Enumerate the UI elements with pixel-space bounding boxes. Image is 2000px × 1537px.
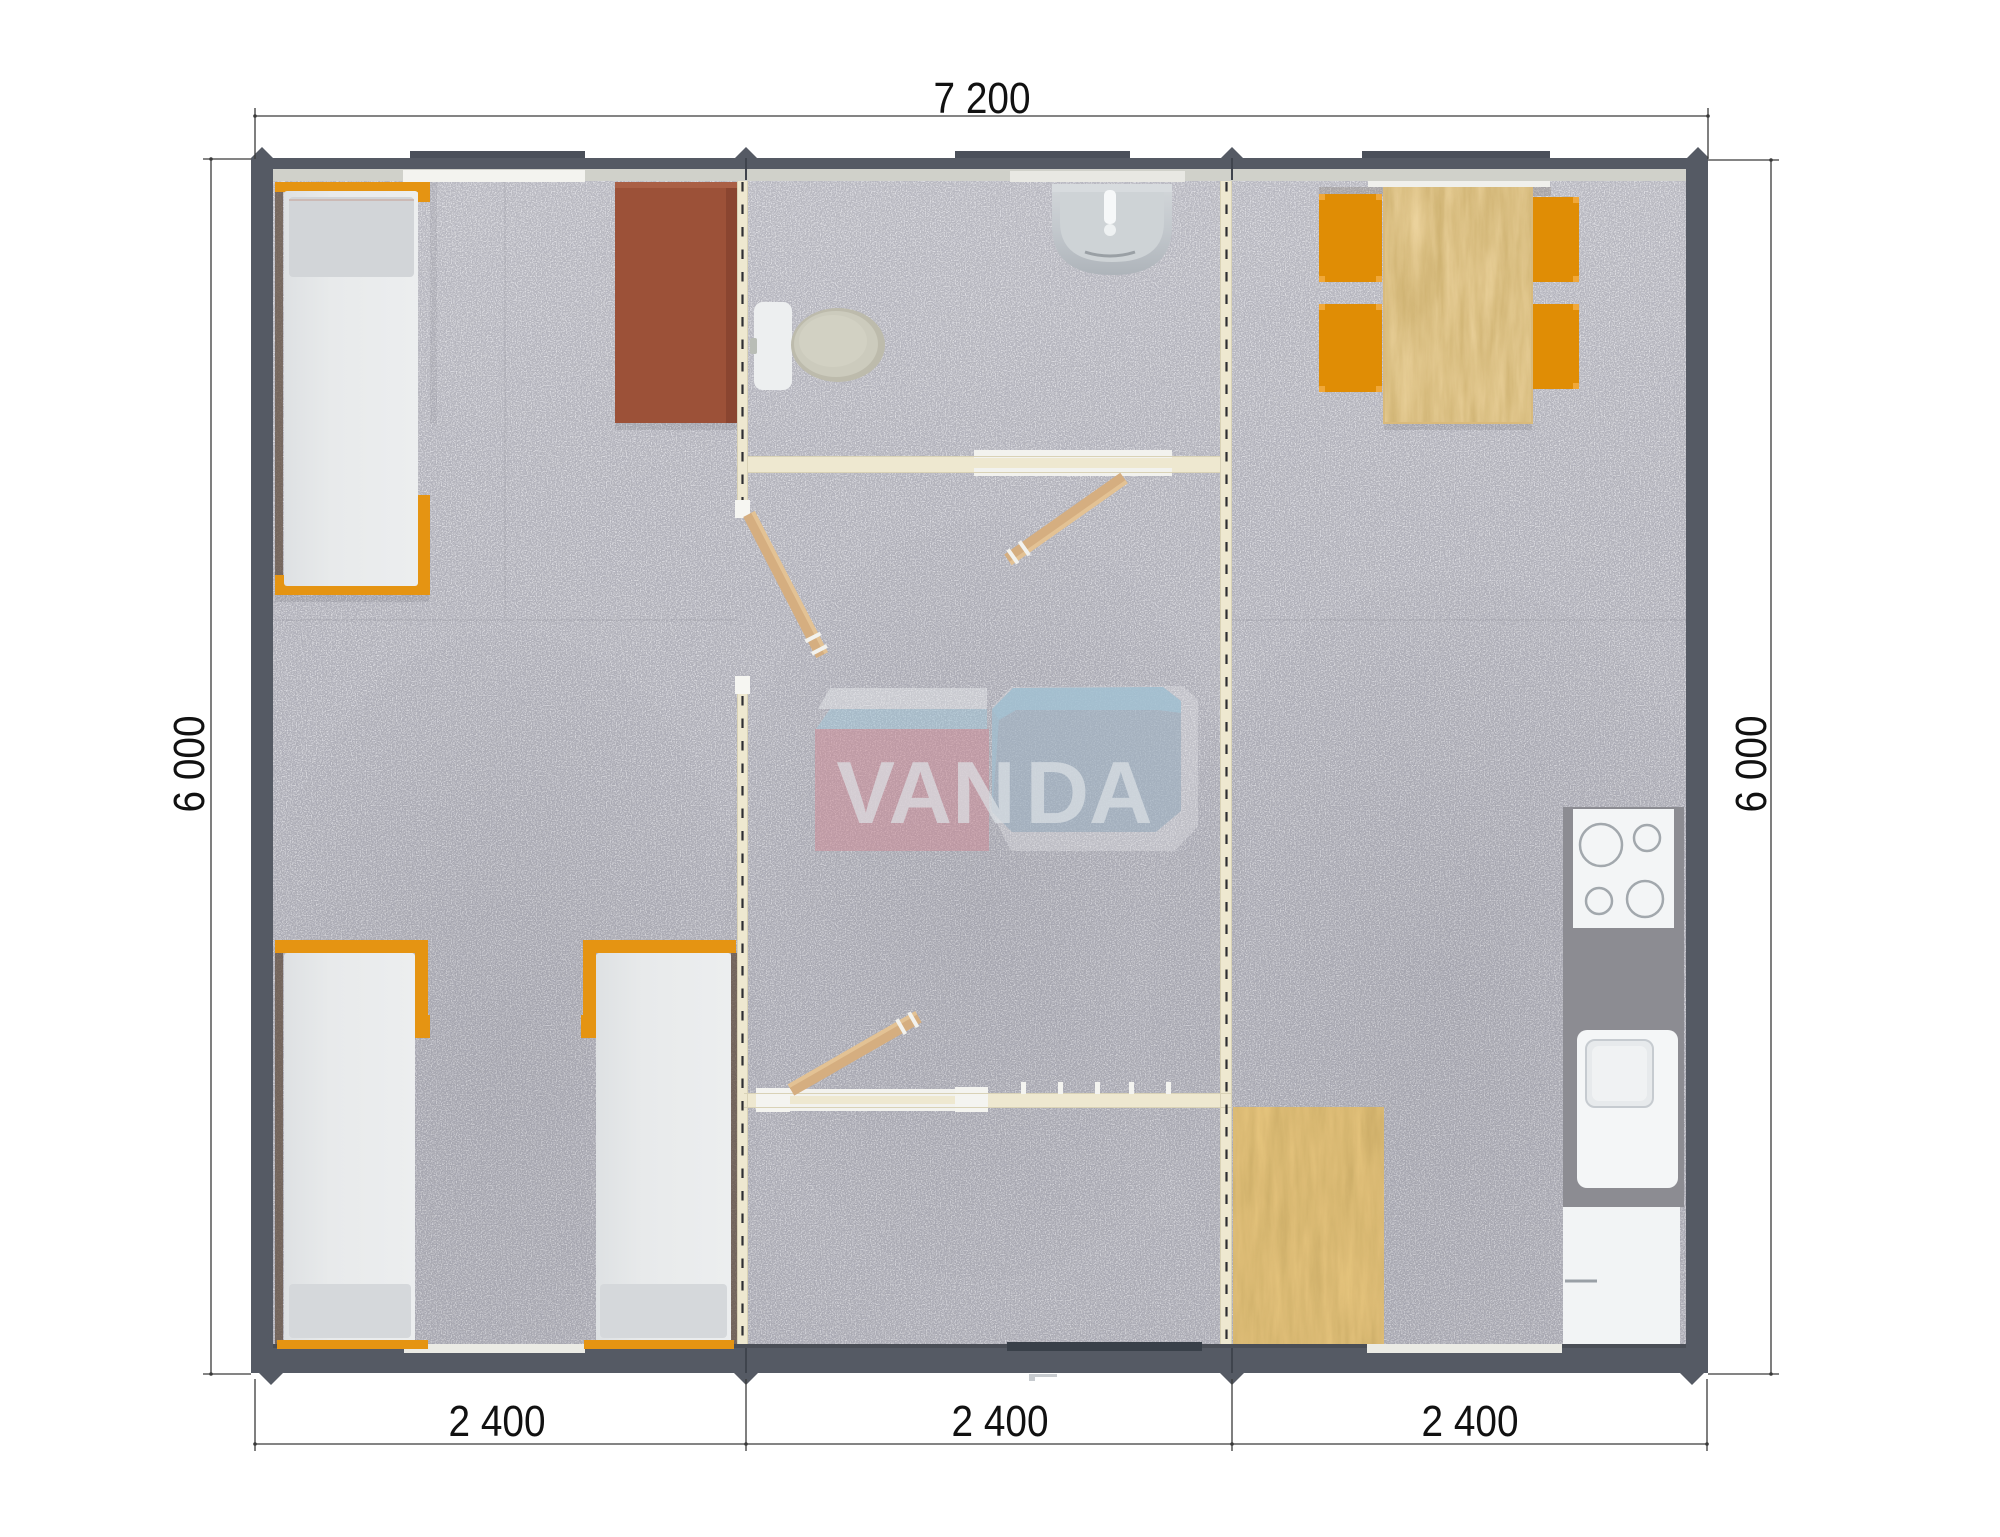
svg-text:2 400: 2 400 xyxy=(952,1397,1049,1446)
svg-text:DA: DA xyxy=(1025,743,1152,842)
svg-text:6 000: 6 000 xyxy=(1727,716,1776,813)
svg-text:2 400: 2 400 xyxy=(449,1397,546,1446)
svg-text:VAN: VAN xyxy=(836,743,1015,842)
svg-text:2 400: 2 400 xyxy=(1422,1397,1519,1446)
svg-text:7 200: 7 200 xyxy=(934,74,1031,123)
svg-text:6 000: 6 000 xyxy=(165,716,214,813)
